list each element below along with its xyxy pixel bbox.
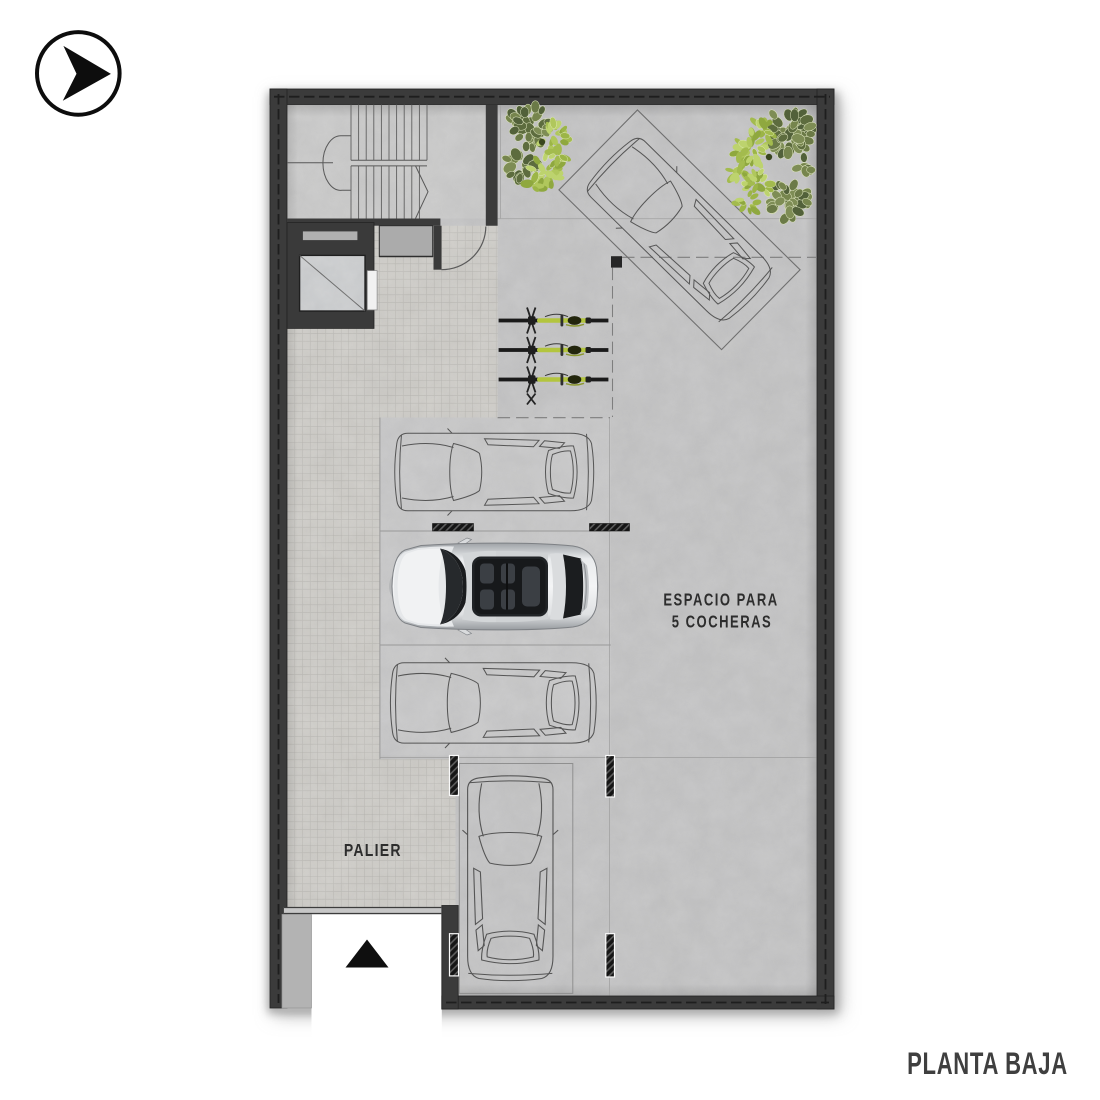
svg-text:PLANTA BAJA: PLANTA BAJA: [907, 1045, 1068, 1081]
svg-text:ESPACIO PARA: ESPACIO PARA: [663, 591, 778, 610]
svg-text:5 COCHERAS: 5 COCHERAS: [672, 613, 772, 632]
svg-text:PALIER: PALIER: [344, 840, 402, 860]
